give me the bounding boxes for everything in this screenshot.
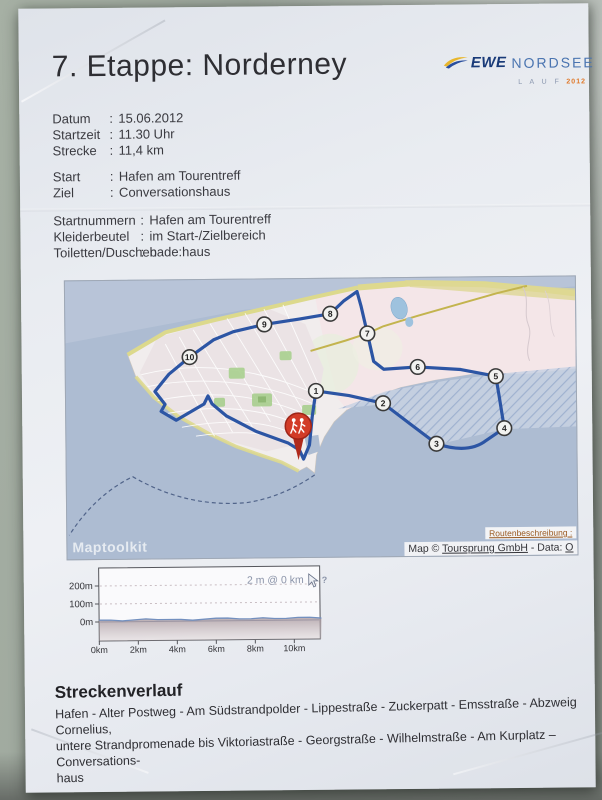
separator: : [110, 169, 114, 184]
field-value: 11.30 Uhr [118, 126, 174, 142]
field-label: Startnummern [53, 213, 136, 229]
field-value: Conversationshaus [119, 184, 230, 200]
field-value: bade:haus [150, 244, 211, 260]
logo-brand-text: EWE [471, 54, 507, 71]
separator: : [140, 213, 144, 228]
map-attribution: Map © Toursprung GmbH - Data: O [404, 540, 577, 556]
svg-text:3: 3 [434, 439, 439, 449]
x-axis-ticks: 0km2km4km6km8km10km [91, 639, 306, 655]
svg-text:10km: 10km [283, 643, 305, 653]
field-value: Hafen am Tourentreff [149, 211, 271, 227]
svg-text:6: 6 [415, 362, 420, 372]
field-label: Kleiderbeutel [53, 229, 129, 245]
separator: : [110, 143, 114, 158]
svg-text:10: 10 [185, 352, 195, 362]
data-source-link: O [565, 541, 573, 553]
separator: : [140, 229, 144, 244]
svg-text:8: 8 [328, 309, 333, 319]
elevation-area-fill [99, 617, 321, 641]
attribution-mid: - Data: [528, 542, 565, 554]
svg-text:1: 1 [314, 386, 319, 396]
field-value: 15.06.2012 [118, 110, 183, 126]
separator: : [110, 185, 114, 200]
svg-text:9: 9 [262, 319, 267, 329]
routenbeschreibung-link: Routenbeschreibung : [485, 526, 576, 539]
page-title: 7. Etappe: Norderney [52, 48, 348, 85]
logo-year-text: 2012 [566, 78, 586, 85]
event-logo: EWE NORDSEE L A U F 2012 [443, 51, 588, 89]
svg-text:2: 2 [381, 398, 386, 408]
svg-text:?: ? [322, 575, 328, 585]
field-value: im Start-/Zielbereich [149, 227, 265, 243]
attribution-prefix: Map © [408, 543, 442, 555]
elevation-profile-chart: 200m 100m 0m 0km2km4km6km8km10km 2 m @ 0… [64, 558, 345, 656]
field-label: Strecke [53, 143, 97, 158]
logo-sub-text: L A U F [518, 79, 562, 86]
logo-name-text: NORDSEE [511, 54, 594, 71]
maptoolkit-watermark: Maptoolkit [72, 539, 147, 556]
printed-sheet: 7. Etappe: Norderney EWE NORDSEE L A U F… [18, 3, 595, 792]
svg-text:8km: 8km [247, 643, 264, 653]
svg-text:7: 7 [365, 328, 370, 338]
streckenverlauf-text: Hafen - Alter Postweg - Am Südstrandpold… [55, 694, 602, 787]
separator: : [141, 245, 145, 260]
field-value: Hafen am Tourentreff [119, 168, 241, 184]
svg-text:2km: 2km [130, 645, 147, 655]
svg-text:4km: 4km [169, 644, 186, 654]
field-label: Startzeit [52, 127, 100, 142]
separator: : [109, 111, 113, 126]
hover-readout: 2 m @ 0 km [247, 574, 304, 587]
svg-text:5: 5 [493, 371, 498, 381]
toursprung-link: Toursprung GmbH [442, 542, 528, 555]
field-label: Datum [52, 111, 90, 126]
y-tick-label: 200m [69, 581, 93, 592]
y-tick-label: 0m [80, 617, 93, 628]
streckenverlauf-heading: Streckenverlauf [55, 681, 183, 703]
separator: : [109, 127, 113, 142]
svg-text:6km: 6km [208, 644, 225, 654]
field-value: 11,4 km [119, 142, 164, 157]
field-label: Start [53, 169, 81, 184]
svg-text:4: 4 [502, 423, 507, 433]
field-label: Ziel [53, 185, 74, 200]
svg-text:0km: 0km [91, 645, 108, 655]
logo-swoosh-icon [443, 52, 469, 73]
y-tick-label: 100m [69, 599, 93, 610]
route-map: 12345678910 Maptoolkit Routenbeschreibun… [64, 275, 579, 560]
